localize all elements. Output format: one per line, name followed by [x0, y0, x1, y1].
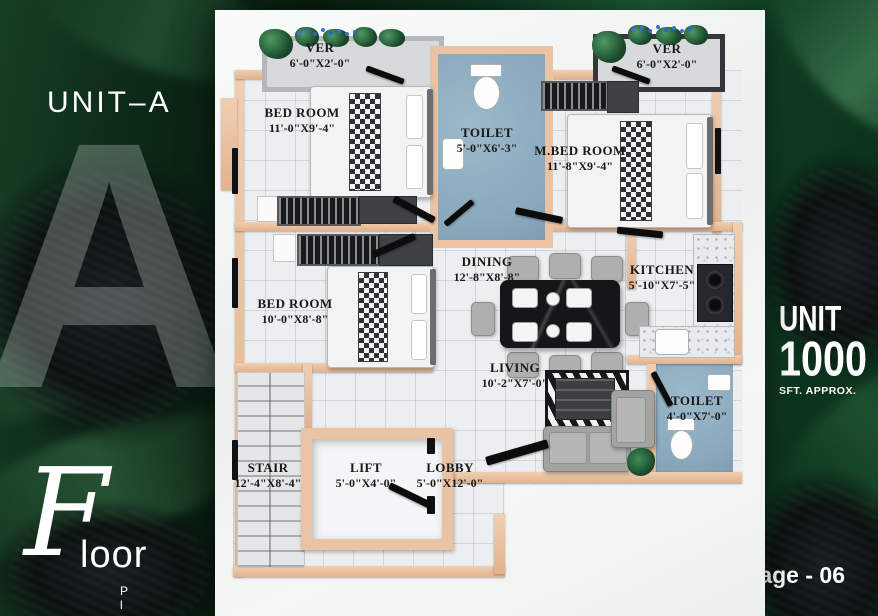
room-name: TOILET — [667, 393, 728, 409]
pillow — [411, 320, 427, 360]
room-name: BED ROOM — [264, 105, 339, 121]
room-name: LIVING — [482, 360, 549, 376]
badge-size-value: 1000 — [779, 335, 867, 384]
toilet-commode — [670, 430, 693, 460]
bed — [310, 86, 432, 198]
headboard — [430, 269, 436, 365]
room-dims: 6'-0"X2'-0" — [290, 56, 351, 71]
room-dims: 11'-0"X9'-4" — [264, 121, 339, 136]
room-label-veranda-right: VER 6'-0"X2'-0" — [637, 41, 698, 72]
plate — [546, 292, 560, 306]
bathroom-sink — [707, 374, 731, 391]
room-dims: 10'-2"X7'-0" — [482, 376, 549, 391]
burner — [705, 295, 725, 315]
wardrobe — [277, 196, 361, 226]
sofa-cushion — [616, 397, 646, 443]
window — [715, 128, 721, 174]
pillow — [406, 145, 423, 189]
wardrobe — [541, 81, 609, 111]
wall — [494, 514, 505, 574]
room-dims: 5'-0"X4'-0" — [336, 476, 397, 491]
room-name: STAIR — [235, 460, 302, 476]
pillow — [406, 95, 423, 139]
dining-table — [500, 280, 620, 348]
cabinet — [607, 81, 639, 113]
sofa-cushion — [549, 432, 587, 464]
room-dims: 6'-0"X2'-0" — [637, 57, 698, 72]
room-dims: 12'-4"X8'-4" — [235, 476, 302, 491]
tv-unit — [555, 378, 615, 420]
chair — [591, 256, 623, 282]
room-dims: 12'-8"X8'-8" — [454, 270, 521, 285]
room-name: TOILET — [457, 125, 518, 141]
leaf — [353, 27, 377, 47]
room-dims: 10'-0"X8'-8" — [257, 312, 332, 327]
leaf — [259, 29, 293, 59]
room-label-veranda-left: VER 6'-0"X2'-0" — [290, 40, 351, 71]
badge-size-unit: SFT. APPROX. — [779, 386, 875, 397]
burner — [705, 270, 725, 290]
flower-dots — [297, 31, 301, 35]
page: A UNIT–A UNIT 1000 SFT. APPROX. Page - 0… — [0, 0, 878, 616]
room-label-lobby: LOBBY 5'-0"X12'-0" — [417, 460, 484, 491]
armchair — [611, 390, 655, 448]
room-dims: 11'-8"X9'-4" — [534, 159, 625, 174]
room-label-lift: LIFT 5'-0"X4'-0" — [336, 460, 397, 491]
room-dims: 5'-0"X12'-0" — [417, 476, 484, 491]
room-name: VER — [637, 41, 698, 57]
lift-door-track — [427, 438, 435, 454]
plate — [566, 288, 592, 308]
toilet-commode — [473, 76, 500, 110]
room-label-master-bedroom: M.BED ROOM 11'-8"X9'-4" — [534, 143, 625, 174]
room-label-dining: DINING 12'-8"X8'-8" — [454, 254, 521, 285]
pillow — [686, 123, 703, 169]
room-dims: 5'-0"X6'-3" — [457, 141, 518, 156]
pillow — [686, 173, 703, 219]
room-label-living: LIVING 10'-2"X7'-0" — [482, 360, 549, 391]
blanket-checkered — [358, 272, 388, 362]
window — [232, 258, 238, 308]
side-table — [257, 196, 278, 222]
logo-subtitle: P l a n — [120, 584, 135, 616]
room-name: BED ROOM — [257, 296, 332, 312]
room-label-toilet-top: TOILET 5'-0"X6'-3" — [457, 125, 518, 156]
room-name: LOBBY — [417, 460, 484, 476]
room-dims: 4'-0"X7'-0" — [667, 409, 728, 424]
leaf — [592, 31, 626, 63]
unit-size-badge: UNIT 1000 SFT. APPROX. — [779, 303, 875, 397]
leaf — [379, 29, 405, 47]
room-dims: 5'-10"X7'-5" — [629, 278, 696, 293]
window — [232, 148, 238, 194]
room-name: DINING — [454, 254, 521, 270]
plate — [512, 288, 538, 308]
watermark-letter: A — [0, 118, 230, 414]
room-label-kitchen: KITCHEN 5'-10"X7'-5" — [629, 262, 696, 293]
unit-title: UNIT–A — [47, 86, 172, 120]
room-name: VER — [290, 40, 351, 56]
room-label-stair: STAIR 12'-4"X8'-4" — [235, 460, 302, 491]
wardrobe — [297, 234, 381, 266]
room-name: KITCHEN — [629, 262, 696, 278]
plate — [566, 322, 592, 342]
floorplan-card: VER 6'-0"X2'-0" BED ROOM 11'-0"X9'-4" TO… — [215, 10, 765, 616]
logo-word: loor — [80, 534, 147, 577]
chair — [549, 253, 581, 279]
side-table — [273, 234, 296, 262]
pillow — [411, 274, 427, 314]
stove — [697, 264, 733, 322]
plate — [546, 324, 560, 338]
flower-dots — [632, 28, 636, 32]
room-label-toilet-bottom: TOILET 4'-0"X7'-0" — [667, 393, 728, 424]
headboard — [707, 117, 713, 225]
plate — [512, 322, 538, 342]
kitchen-sink — [655, 329, 689, 355]
room-name: LIFT — [336, 460, 397, 476]
room-label-bedroom-mid: BED ROOM 10'-0"X8'-8" — [257, 296, 332, 327]
blanket-checkered — [349, 93, 381, 191]
room-label-bedroom-top: BED ROOM 11'-0"X9'-4" — [264, 105, 339, 136]
bed — [327, 266, 435, 368]
headboard — [427, 89, 433, 195]
room-name: M.BED ROOM — [534, 143, 625, 159]
chair — [471, 302, 495, 336]
